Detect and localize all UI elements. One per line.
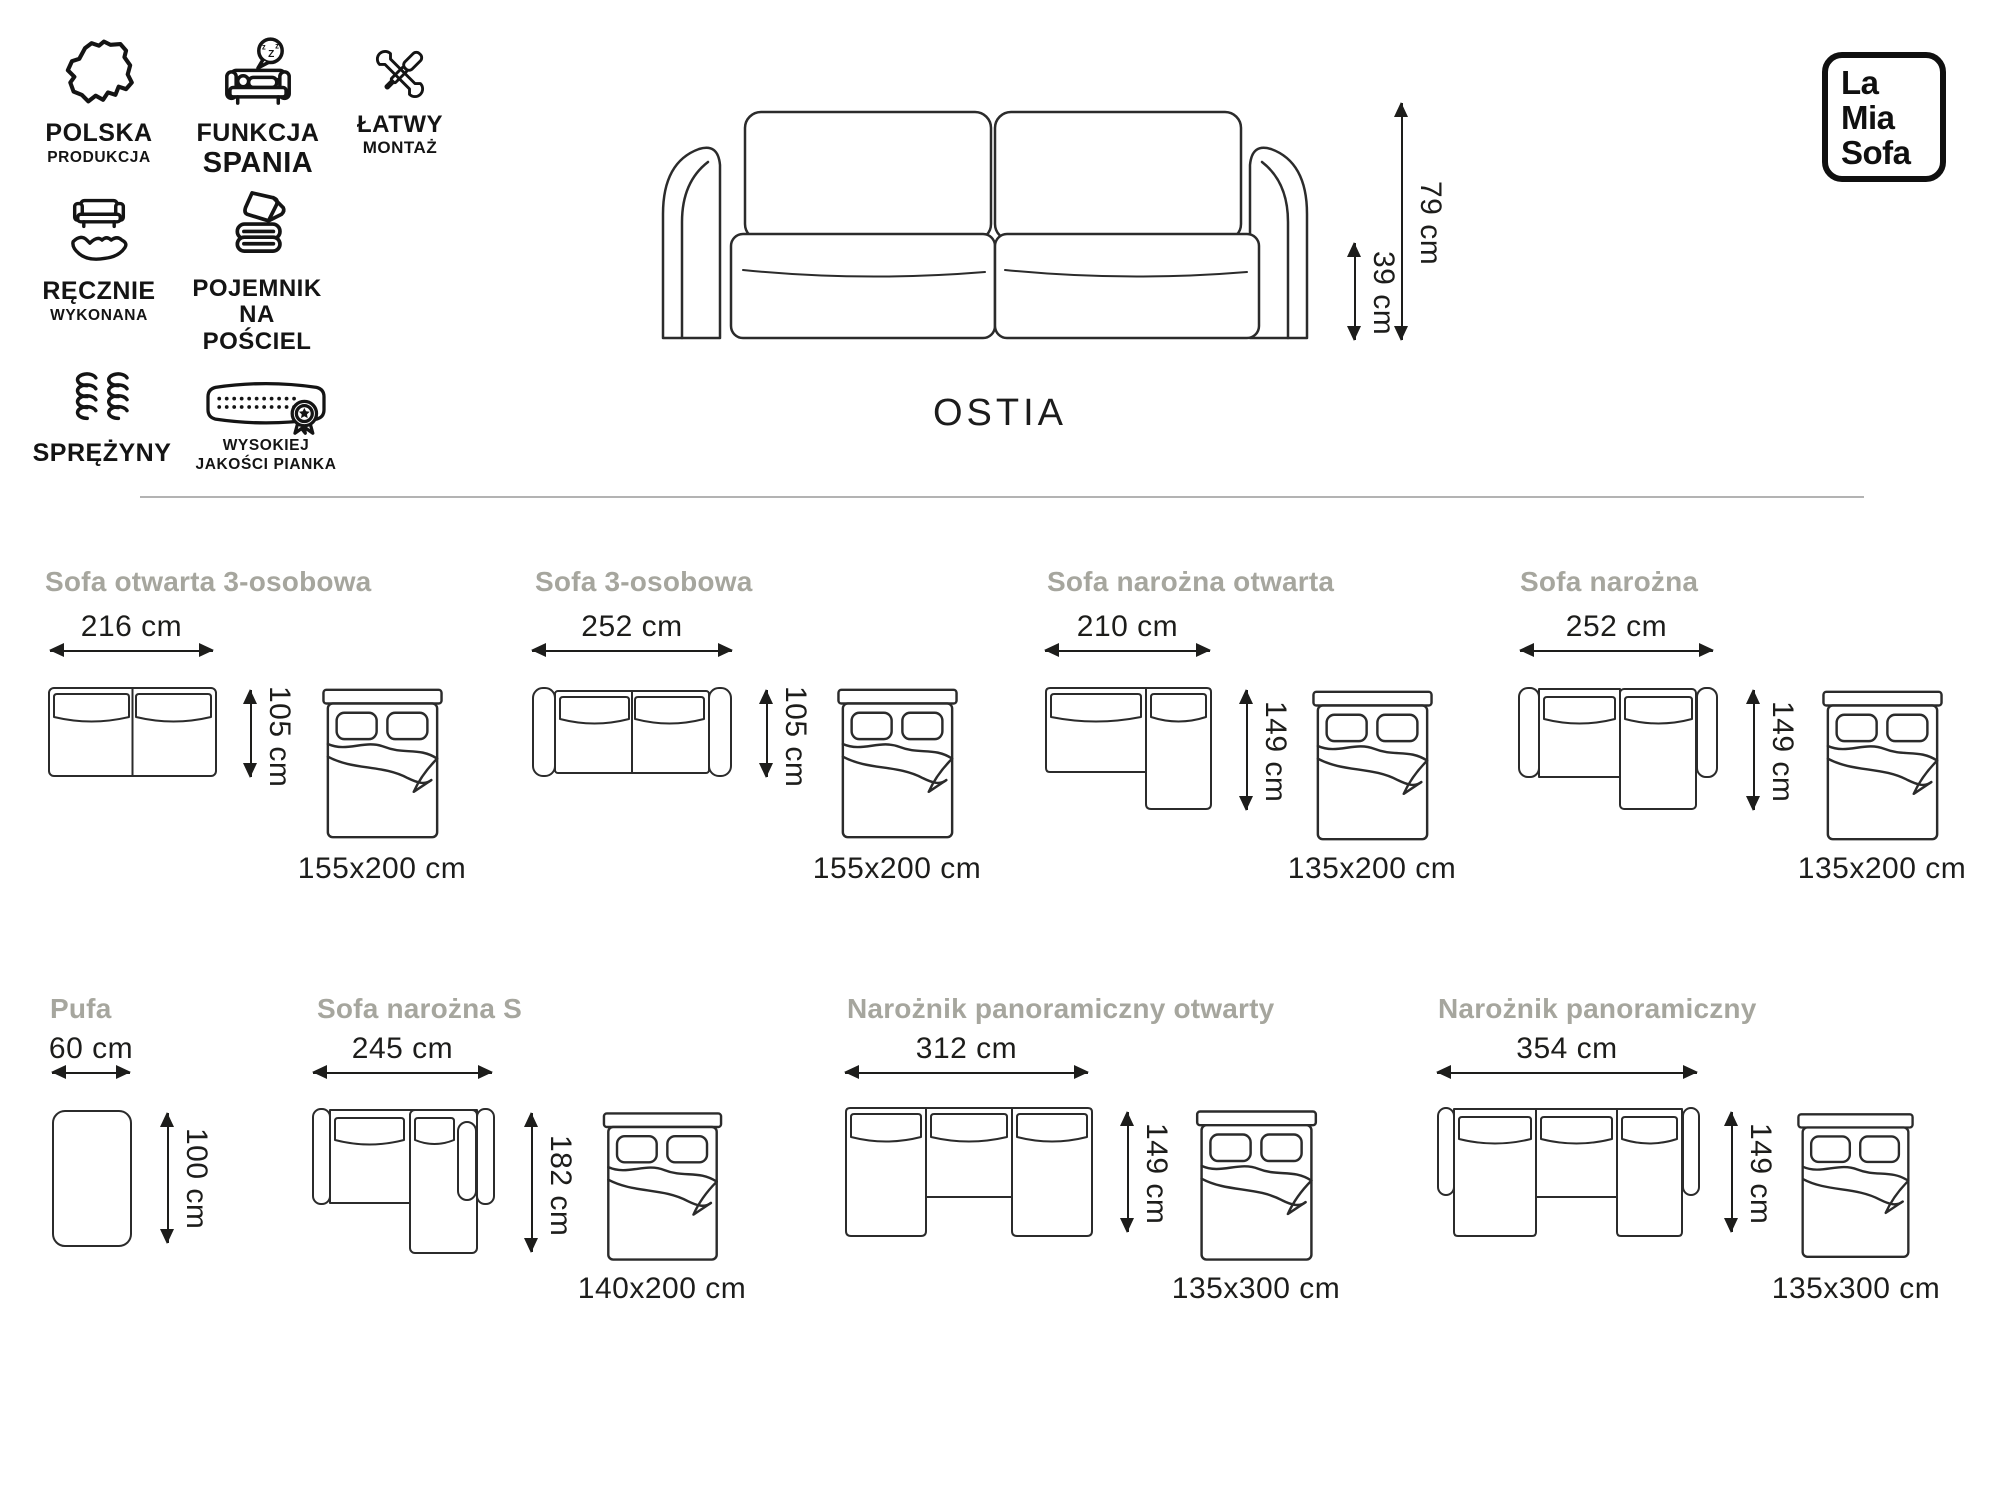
feature-sublabel: WYKONANA <box>50 306 148 325</box>
bed-drawing <box>602 1112 723 1262</box>
sofa-top-view-drawing <box>48 687 217 777</box>
sofa-top-view-drawing <box>312 1108 495 1255</box>
feature-label: FUNKCJA <box>197 120 320 148</box>
bed-size-label: 135x300 cm <box>1166 1272 1346 1306</box>
la-mia-sofa-logo: La Mia Sofa <box>1822 52 1946 182</box>
config-title: Sofa otwarta 3-osobowa <box>45 566 371 598</box>
logo-line: La <box>1841 66 1940 101</box>
depth-dimension-label: 100 cm <box>179 1128 213 1229</box>
seat-height-label: 39 cm <box>1366 251 1400 335</box>
hero-sofa-drawing <box>655 92 1315 342</box>
width-dimension-arrow <box>845 1072 1088 1074</box>
config-title: Sofa narożna <box>1520 566 1698 598</box>
feature-label: RĘCZNIE <box>42 278 155 306</box>
feature-sprezyny: SPRĘŻYNY <box>28 370 176 468</box>
depth-dimension-arrow <box>250 690 252 777</box>
bed-size-label: 135x300 cm <box>1766 1272 1946 1306</box>
bed-drawing <box>1312 690 1433 842</box>
sofa-top-view-drawing <box>532 687 732 777</box>
bed-drawing <box>1822 690 1943 842</box>
feature-latwy-montaz: ŁATWY MONTAŻ <box>336 42 464 158</box>
depth-dimension-label: 149 cm <box>1743 1123 1777 1224</box>
sofa-top-view-drawing <box>1437 1107 1700 1237</box>
bed-size-label: 135x200 cm <box>1282 852 1462 886</box>
depth-dimension-arrow <box>1127 1112 1129 1232</box>
width-dimension-label: 252 cm <box>532 610 732 644</box>
depth-dimension-label: 149 cm <box>1258 701 1292 802</box>
depth-dimension-arrow <box>1731 1112 1733 1232</box>
sofa-top-view-drawing <box>1045 687 1212 810</box>
section-divider <box>140 496 1864 498</box>
feature-sublabel: JAKOŚCI PIANKA <box>195 455 336 474</box>
overall-height-label: 79 cm <box>1413 181 1447 265</box>
feature-label: SPRĘŻYNY <box>33 440 172 468</box>
bed-drawing <box>837 688 958 840</box>
width-dimension-arrow <box>1437 1072 1697 1074</box>
svg-text:Z: Z <box>268 49 274 60</box>
feature-sublabel: PRODUKCJA <box>47 148 151 167</box>
product-name: OSTIA <box>880 392 1120 435</box>
bed-size-label: 155x200 cm <box>807 852 987 886</box>
bed-drawing <box>1195 1110 1318 1262</box>
svg-text:z: z <box>275 41 279 50</box>
feature-label: POJEMNIK <box>192 276 321 302</box>
feature-label: ŁATWY <box>357 112 443 138</box>
config-title: Sofa narożna S <box>317 993 522 1025</box>
depth-dimension-label: 149 cm <box>1765 701 1799 802</box>
depth-dimension-label: 105 cm <box>778 686 812 787</box>
feature-sublabel: SPANIA <box>203 148 313 178</box>
feature-label: WYSOKIEJ <box>223 436 310 455</box>
feature-sublabel: NA POŚCIEL <box>186 302 328 355</box>
config-title: Narożnik panoramiczny otwarty <box>847 993 1274 1025</box>
depth-dimension-arrow <box>167 1113 169 1243</box>
width-dimension-arrow <box>52 1072 130 1074</box>
width-dimension-label: 60 cm <box>22 1032 160 1066</box>
foam-quality-icon <box>199 378 333 436</box>
width-dimension-arrow <box>1520 650 1713 652</box>
bedding-container-icon <box>215 188 299 270</box>
width-dimension-label: 252 cm <box>1520 610 1713 644</box>
feature-pojemnik-na-posciel: POJEMNIK NA POŚCIEL <box>186 188 328 355</box>
config-title: Sofa narożna otwarta <box>1047 566 1334 598</box>
pouf-top-view-drawing <box>52 1110 132 1247</box>
sofa-top-view-drawing <box>845 1107 1093 1237</box>
product-spec-sheet: POLSKA PRODUKCJA z Z z FUNKCJA SPANIA <box>0 0 2000 1500</box>
poland-map-icon <box>58 38 140 114</box>
width-dimension-arrow <box>532 650 732 652</box>
depth-dimension-arrow <box>531 1113 533 1252</box>
hand-sofa-icon <box>56 196 142 272</box>
feature-label: POLSKA <box>45 120 152 148</box>
springs-icon <box>63 370 141 434</box>
feature-recznie-wykonana: RĘCZNIE WYKONANA <box>25 196 173 325</box>
feature-funkcja-spania: z Z z FUNKCJA SPANIA <box>186 36 330 178</box>
bed-size-label: 135x200 cm <box>1792 852 1972 886</box>
config-title: Pufa <box>50 993 111 1025</box>
bed-drawing <box>1797 1110 1914 1262</box>
seat-height-arrow <box>1354 243 1356 340</box>
width-dimension-label: 354 cm <box>1437 1032 1697 1066</box>
bed-drawing <box>322 688 443 840</box>
overall-height-arrow <box>1401 103 1403 340</box>
feature-polska-produkcja: POLSKA PRODUKCJA <box>25 38 173 167</box>
tools-icon <box>368 42 432 106</box>
width-dimension-label: 210 cm <box>1045 610 1210 644</box>
width-dimension-arrow <box>1045 650 1210 652</box>
depth-dimension-arrow <box>1753 690 1755 810</box>
config-title: Sofa 3-osobowa <box>535 566 753 598</box>
sleep-function-icon: z Z z <box>219 36 297 114</box>
width-dimension-label: 245 cm <box>313 1032 492 1066</box>
depth-dimension-arrow <box>766 690 768 777</box>
width-dimension-arrow <box>313 1072 492 1074</box>
depth-dimension-arrow <box>1246 690 1248 810</box>
depth-dimension-label: 105 cm <box>262 686 296 787</box>
width-dimension-label: 312 cm <box>845 1032 1088 1066</box>
bed-size-label: 140x200 cm <box>572 1272 752 1306</box>
depth-dimension-label: 149 cm <box>1139 1123 1173 1224</box>
feature-sublabel: MONTAŻ <box>363 138 437 158</box>
config-title: Narożnik panoramiczny <box>1438 993 1757 1025</box>
width-dimension-arrow <box>50 650 213 652</box>
width-dimension-label: 216 cm <box>50 610 213 644</box>
feature-wysokiej-jakosci-pianka: WYSOKIEJ JAKOŚCI PIANKA <box>190 378 342 475</box>
svg-text:z: z <box>262 42 266 51</box>
bed-size-label: 155x200 cm <box>292 852 472 886</box>
logo-line: Sofa <box>1841 136 1940 171</box>
logo-line: Mia <box>1841 101 1940 136</box>
sofa-top-view-drawing <box>1518 687 1718 810</box>
depth-dimension-label: 182 cm <box>543 1135 577 1236</box>
